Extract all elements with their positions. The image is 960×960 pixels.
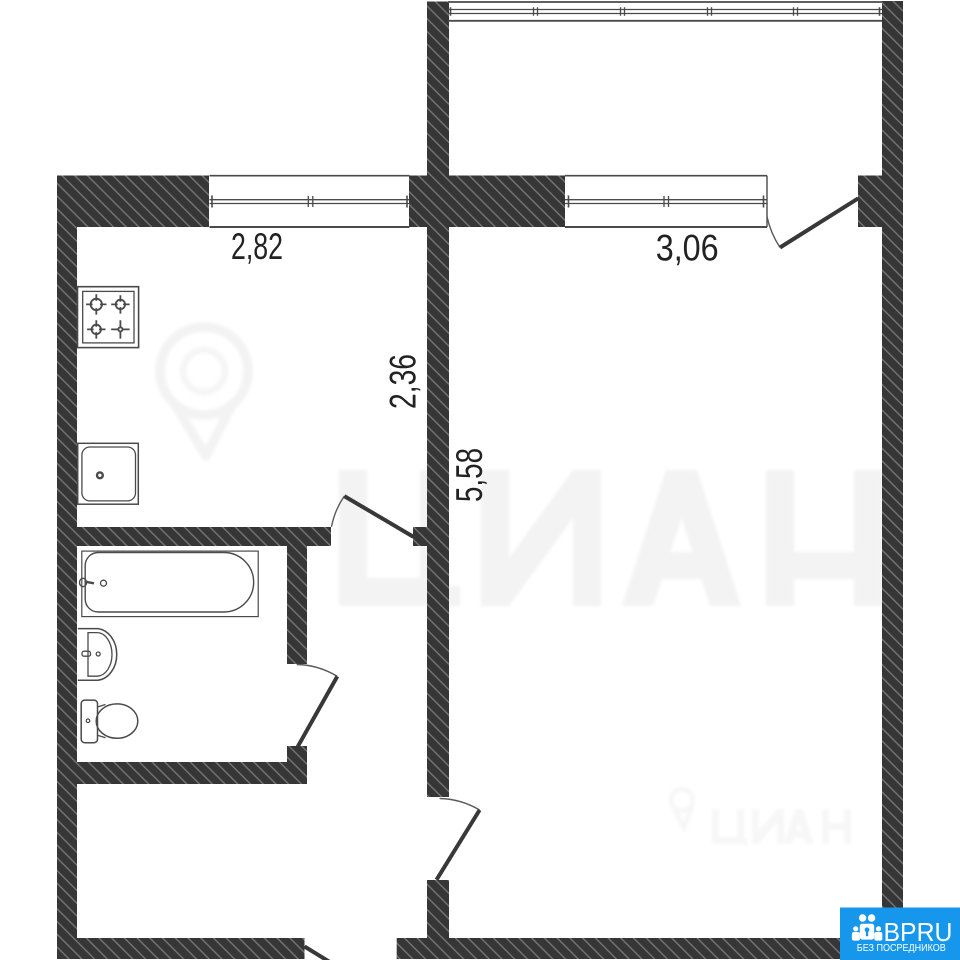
svg-text:3,06: 3,06 — [656, 228, 719, 269]
svg-text:2,82: 2,82 — [231, 226, 283, 267]
svg-text:5,58: 5,58 — [449, 448, 490, 502]
svg-text:2,36: 2,36 — [383, 354, 424, 409]
svg-text:БЕЗ ПОСРЕДНИКОВ: БЕЗ ПОСРЕДНИКОВ — [857, 943, 946, 954]
